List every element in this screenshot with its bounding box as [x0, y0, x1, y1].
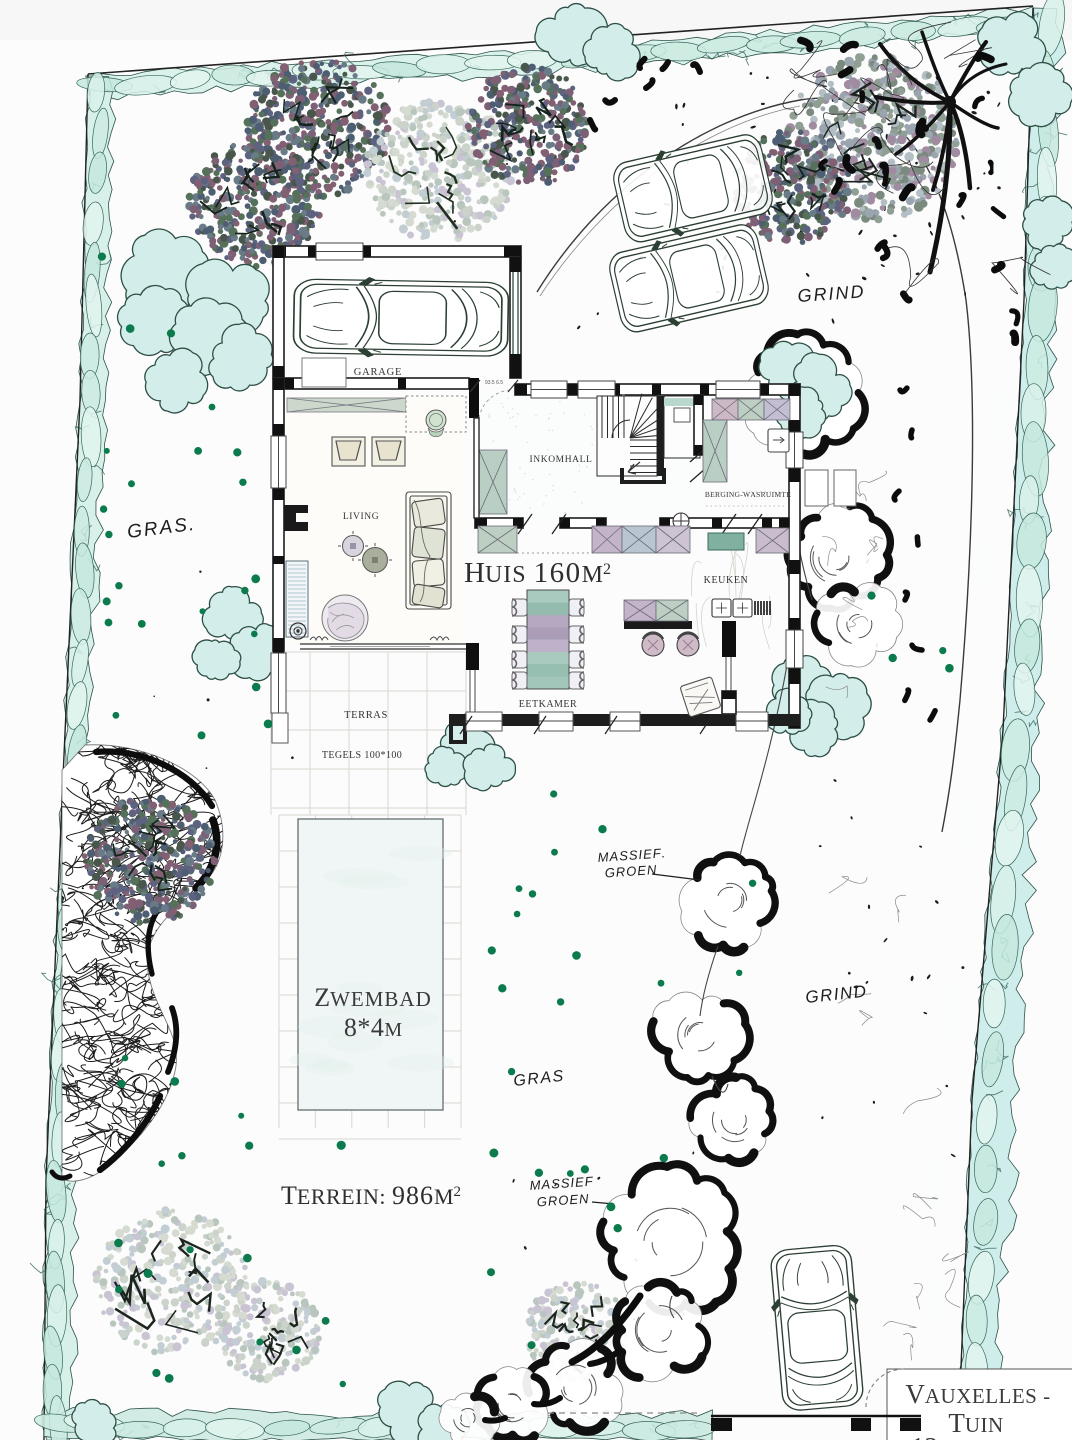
svg-text:93.5 6.5: 93.5 6.5: [485, 380, 503, 386]
svg-text:EETKAMER: EETKAMER: [519, 699, 577, 710]
svg-text:TERREIN: 986M2: TERREIN: 986M2: [281, 1181, 461, 1210]
svg-text:LIVING: LIVING: [343, 512, 379, 522]
svg-text:TUIN: TUIN: [948, 1408, 1003, 1438]
svg-text:HUIS 160M2: HUIS 160M2: [464, 557, 611, 589]
svg-text:TERRAS: TERRAS: [344, 710, 388, 721]
svg-text:VAUXELLES -: VAUXELLES -: [905, 1379, 1050, 1409]
svg-text:INKOMHALL: INKOMHALL: [530, 455, 593, 465]
svg-text:ZWEMBAD: ZWEMBAD: [314, 983, 432, 1012]
svg-text:GARAGE: GARAGE: [354, 367, 403, 378]
svg-text:BERGING-WASRUIMTE: BERGING-WASRUIMTE: [705, 490, 791, 499]
svg-text:KEUKEN: KEUKEN: [704, 575, 749, 586]
svg-text:TEGELS 100*100: TEGELS 100*100: [322, 750, 402, 761]
